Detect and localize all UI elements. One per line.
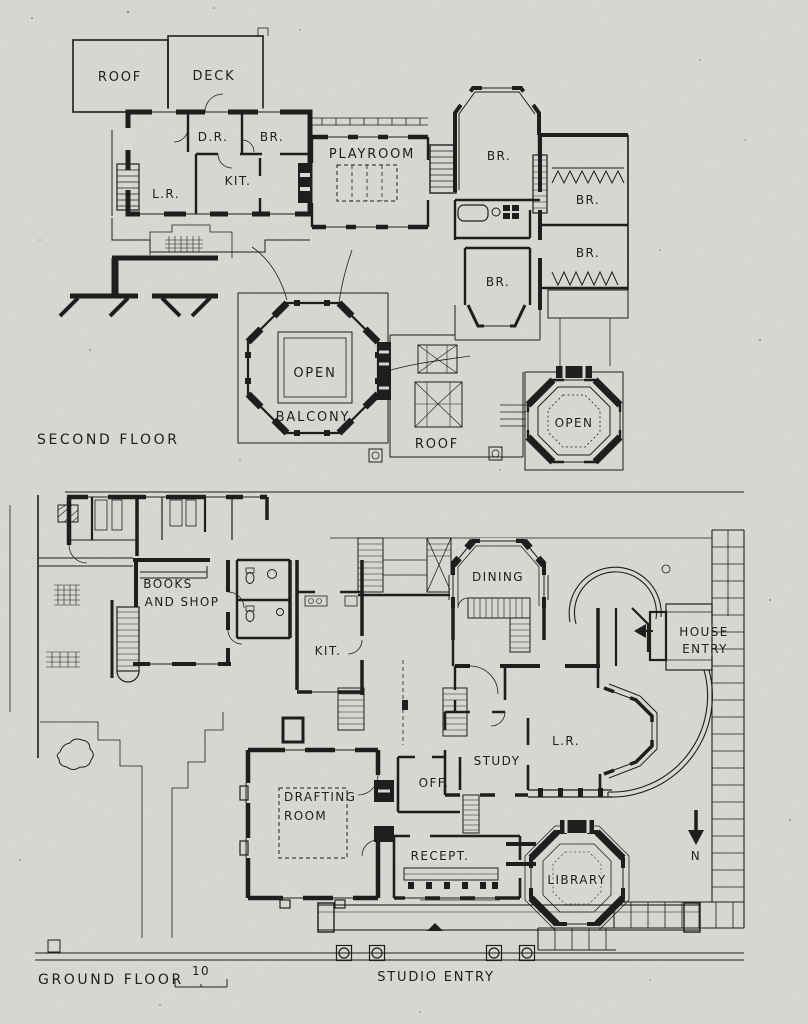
scale-number: 10 (192, 964, 210, 978)
room-label-lr-ground: L.R. (552, 734, 580, 748)
room-label-br-c: BR. (576, 193, 600, 207)
room-label-study: STUDY (474, 754, 521, 768)
floor-plan-sheet: L.R. KIT. D.R. BR. ROOF DECK PLAYROOM BR… (0, 0, 808, 1024)
room-label-roof: ROOF (98, 70, 142, 85)
room-label-br-d: BR. (576, 246, 600, 260)
room-label-books-2: AND SHOP (145, 595, 220, 609)
studio-entry-label: STUDIO ENTRY (377, 970, 495, 985)
room-label-playroom: PLAYROOM (329, 147, 415, 162)
room-label-roof-flat: ROOF (415, 437, 459, 452)
room-label-library: LIBRARY (547, 873, 606, 887)
room-label-open-balcony: OPEN (293, 366, 336, 381)
room-label-kit-ground: KIT. (315, 644, 342, 658)
room-label-drafting-1: DRAFTING (284, 790, 356, 804)
room-label-dining: DINING (472, 570, 524, 584)
room-label-br-a: BR. (260, 130, 284, 144)
room-label-drafting-2: ROOM (284, 809, 327, 823)
second-floor-title: SECOND FLOOR (37, 432, 180, 448)
room-label-open-octagon: OPEN (555, 416, 594, 430)
room-label-lr: L.R. (152, 187, 180, 201)
room-label-br-e: BR. (486, 275, 510, 289)
room-label-recept: RECEPT. (411, 849, 470, 863)
room-label-balcony: BALCONY (276, 410, 351, 425)
north-label: N (691, 849, 701, 863)
room-label-office: OFF. (419, 776, 450, 790)
ground-floor-title: GROUND FLOOR (38, 972, 184, 988)
floor-plan-drawing: L.R. KIT. D.R. BR. ROOF DECK PLAYROOM BR… (0, 0, 808, 1024)
room-label-dr: D.R. (198, 130, 228, 144)
room-label-kit: KIT. (225, 174, 252, 188)
room-label-deck: DECK (192, 69, 235, 84)
room-label-books-1: BOOKS (143, 577, 192, 591)
room-label-br-b: BR. (487, 149, 511, 163)
